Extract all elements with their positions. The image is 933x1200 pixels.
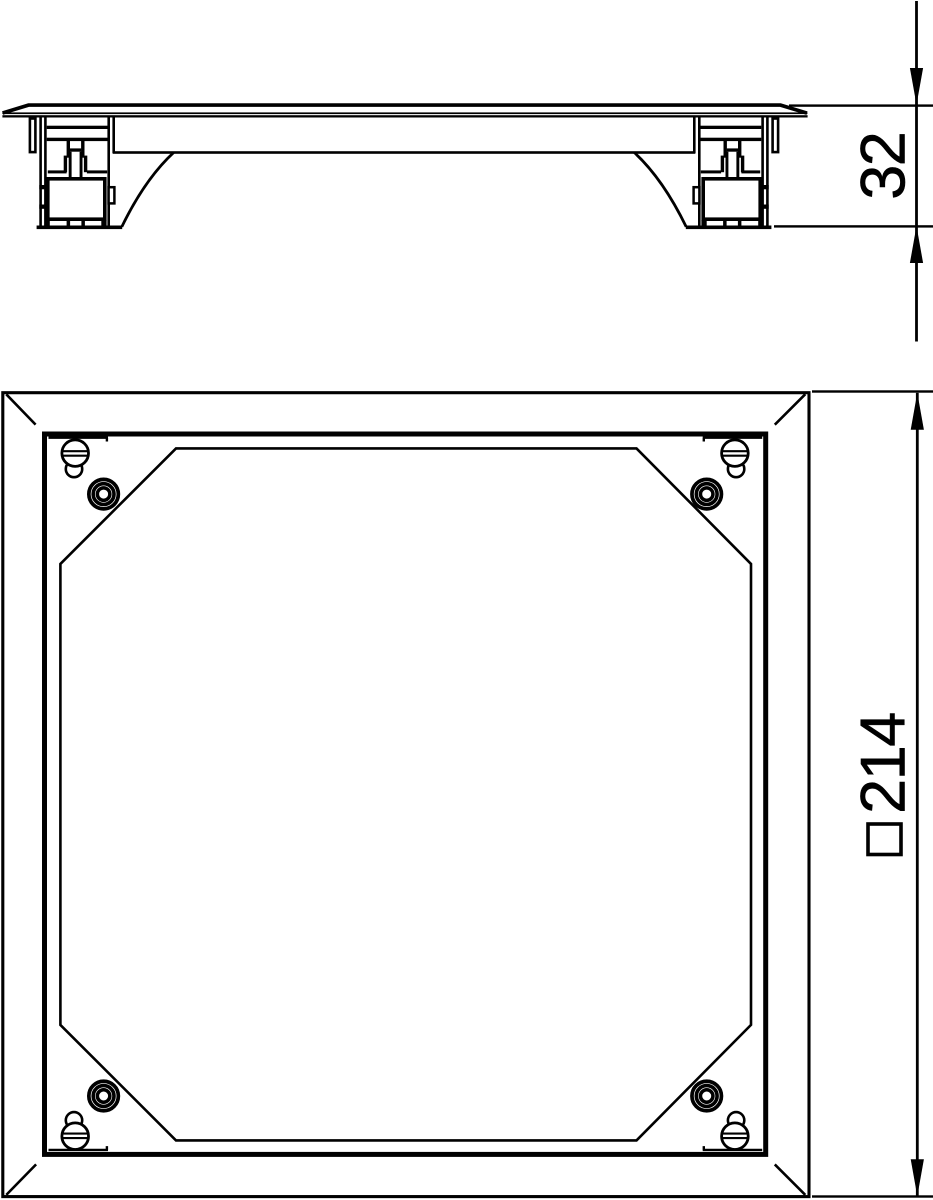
svg-text:214: 214 — [849, 713, 919, 814]
svg-text:32: 32 — [849, 133, 919, 200]
